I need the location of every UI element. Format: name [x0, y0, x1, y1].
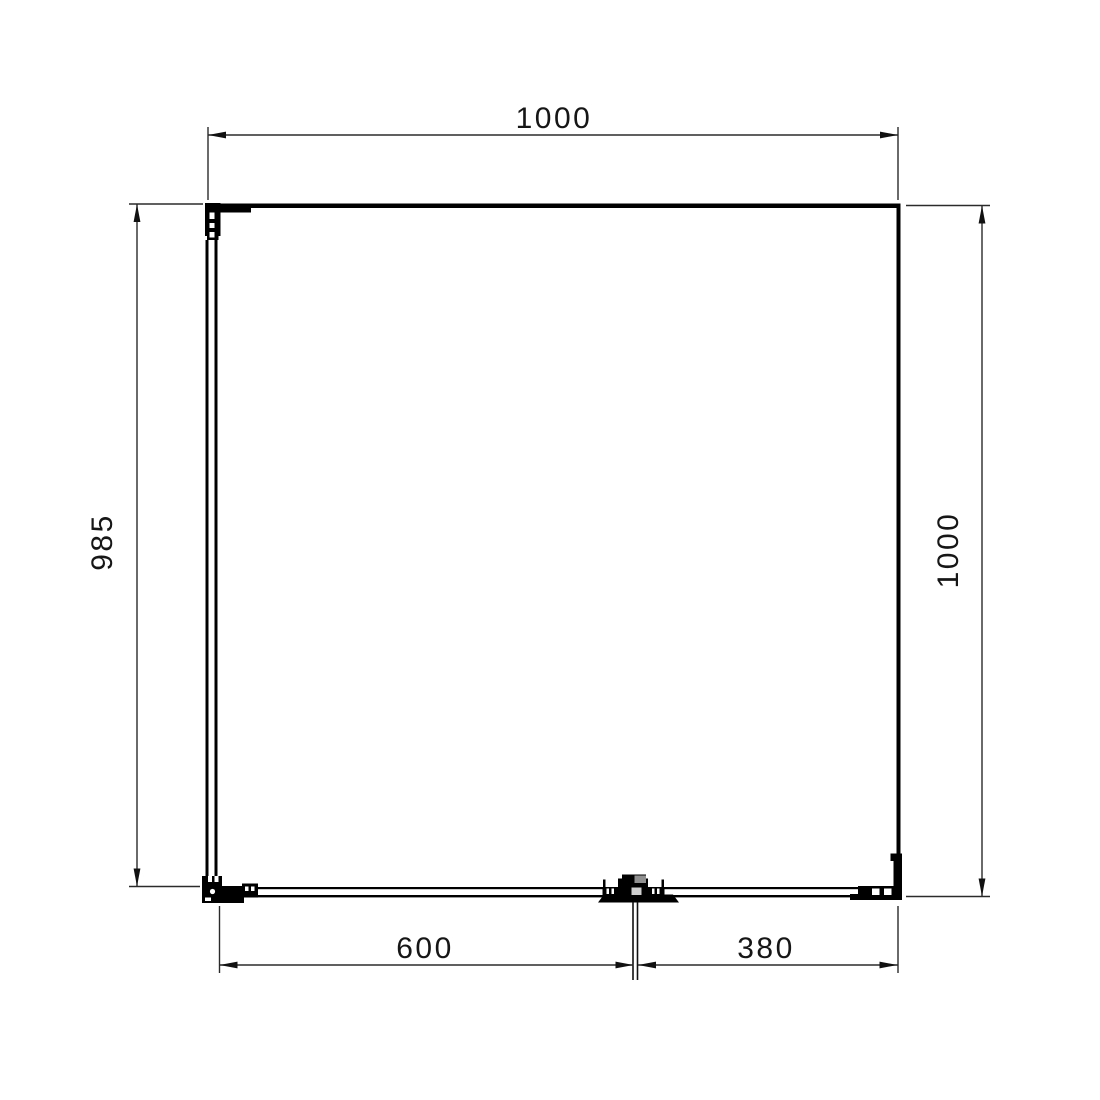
bracket-br-horizontal	[858, 886, 902, 900]
drawing-canvas: 1000 985 1000 600 380	[0, 0, 1100, 1100]
clamp-teeth-left	[603, 887, 620, 896]
clamp-teeth-right	[648, 887, 665, 896]
panel-top-edge	[207, 204, 900, 209]
dim-right-label: 1000	[932, 512, 965, 589]
bracket-bl-foot-notch	[205, 898, 211, 902]
bracket-bl-notch-b	[251, 887, 255, 892]
clamp-tick-left	[603, 880, 606, 888]
wall-profile-top-left	[205, 203, 221, 240]
dim-top-label: 1000	[516, 102, 593, 135]
bracket-br-window-b	[884, 889, 892, 896]
clamp-teeth-right-gap-b	[657, 889, 660, 895]
clamp-tick-right	[662, 880, 665, 888]
panel-right-edge	[897, 204, 901, 898]
bracket-br-foot-step	[850, 894, 858, 900]
clamp-teeth-left-gap-a	[607, 889, 610, 895]
clamp-teeth-right-gap-a	[652, 889, 655, 895]
bracket-bl-hinge-tab	[242, 884, 258, 898]
clamp-teeth-left-gap-b	[612, 889, 615, 895]
bracket-bl-slot-b	[215, 876, 219, 882]
bracket-bl-notch-a	[245, 887, 249, 892]
dim-left-label: 985	[86, 513, 119, 571]
wall-profile-taper-right	[219, 236, 221, 240]
panel-plan-drawing: 1000 985 1000 600 380	[0, 0, 1100, 1100]
wall-profile-slot	[210, 213, 215, 238]
dim-380-label: 380	[737, 932, 795, 965]
bracket-bl-screw-hole	[210, 889, 215, 894]
dim-600-label: 600	[396, 932, 454, 965]
wall-profile-bridge-upper	[210, 219, 215, 223]
clamp-cap-steel-insert	[635, 876, 647, 884]
panel-bottom-edge-lower-line	[219, 895, 898, 897]
bracket-br-window-a	[872, 889, 880, 896]
wall-profile-taper-left	[205, 236, 207, 240]
panel-bottom-edge-upper-line	[219, 887, 898, 889]
clamp-block-insert	[632, 888, 642, 896]
panel-left-edge-outer-line	[206, 238, 209, 878]
bracket-bl-slot-a	[208, 876, 212, 882]
wall-profile-bridge-lower	[210, 228, 215, 232]
bracket-br-top-notch	[891, 854, 894, 862]
panel-left-edge-inner-line	[215, 238, 218, 878]
